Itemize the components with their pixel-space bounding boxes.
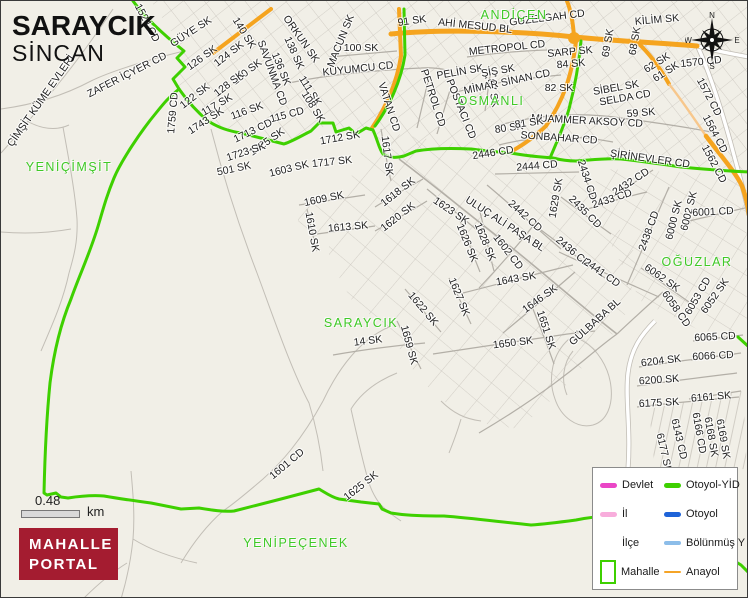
legend-label: Anayol	[686, 566, 720, 578]
legend: DevletOtoyol-YİDİlOtoyolİlçeBölünmüş YMa…	[592, 467, 738, 590]
street-label: 6066 CD	[692, 349, 734, 363]
legend-label: İl	[622, 508, 628, 520]
area-label: OĞUZLAR	[662, 255, 733, 269]
mahalle-portal-logo: MAHALLE PORTAL	[19, 528, 118, 580]
legend-label: Mahalle	[621, 566, 660, 578]
legend-label: Otoyol	[686, 508, 718, 520]
legend-item: Otoyol-YİD	[664, 473, 745, 498]
legend-item: Bölünmüş Y	[664, 530, 745, 555]
legend-item: Devlet	[600, 473, 664, 498]
street-label: 6175 SK	[639, 396, 680, 410]
legend-line-swatch	[664, 483, 681, 488]
street-label: 100 SK	[344, 42, 378, 54]
legend-line-swatch	[664, 512, 681, 517]
scale-bar-rect	[21, 510, 80, 518]
compass-rose-icon: N E S W	[685, 9, 741, 69]
scale-unit: km	[87, 504, 104, 519]
legend-label: Otoyol-YİD	[686, 479, 740, 491]
legend-label: Bölünmüş Y	[686, 537, 745, 549]
street-label: 84 SK	[556, 57, 586, 71]
legend-item: İlçe	[600, 530, 664, 555]
legend-line-swatch	[664, 571, 681, 573]
legend-label: Devlet	[622, 479, 653, 491]
scale-value: 0.48	[35, 493, 60, 508]
area-label: OSMANLI	[458, 94, 525, 108]
area-label: YENİPEÇENEK	[243, 536, 348, 550]
compass-w-label: W	[685, 36, 692, 45]
logo-line2: PORTAL	[29, 555, 118, 575]
map-title-block: SARAYCIK SİNCAN	[12, 11, 156, 67]
legend-line-swatch	[664, 541, 681, 545]
street-label: 82 SK	[545, 82, 574, 94]
area-label: ANDİÇEN	[481, 8, 548, 22]
district-subtitle: SİNCAN	[12, 40, 156, 67]
legend-label: İlçe	[622, 537, 639, 549]
legend-item: İl	[600, 502, 664, 527]
legend-line-swatch	[600, 483, 617, 488]
page-title: SARAYCIK	[12, 11, 156, 40]
compass-n-label: N	[709, 11, 715, 20]
legend-item: Anayol	[664, 559, 745, 584]
area-label: YENİÇİMŞİT	[26, 160, 113, 174]
mahalle-outline-swatch	[600, 560, 616, 584]
street-label: 6065 CD	[694, 330, 736, 344]
logo-line1: MAHALLE	[29, 535, 118, 555]
map-canvas[interactable]: SARAYCIK SİNCAN N E S W 0.48 km MAHALLE …	[0, 0, 748, 598]
legend-line-swatch	[600, 512, 617, 517]
street-label: 6001 CD	[692, 205, 734, 219]
area-label: SARAYCIK	[324, 316, 398, 330]
compass-e-label: E	[734, 36, 739, 45]
legend-item: Otoyol	[664, 502, 745, 527]
compass-s-label: S	[709, 62, 714, 69]
legend-item: Mahalle	[600, 559, 664, 584]
